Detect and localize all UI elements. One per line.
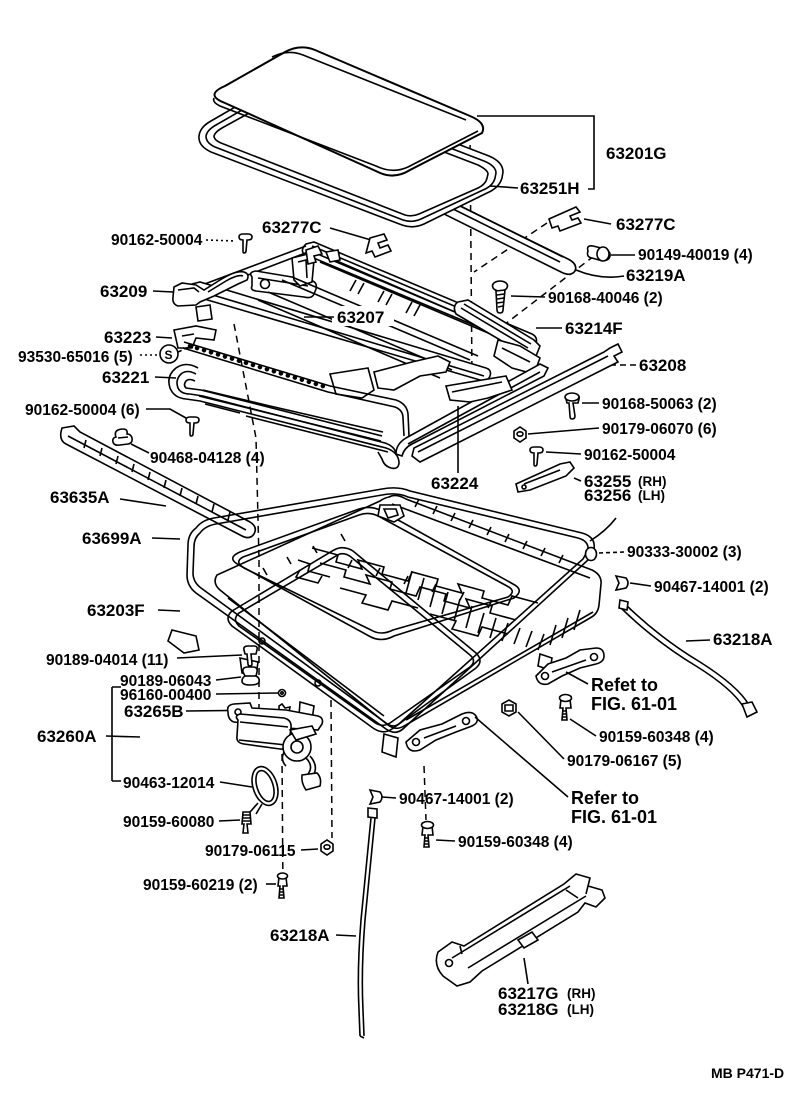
- svg-text:63221: 63221: [102, 368, 149, 387]
- svg-text:90179-06115: 90179-06115: [205, 843, 296, 860]
- svg-text:Refet to: Refet to: [591, 675, 658, 695]
- svg-text:FIG. 61-01: FIG. 61-01: [591, 694, 677, 714]
- svg-text:90468-04128 (4): 90468-04128 (4): [150, 450, 265, 467]
- svg-text:63635A: 63635A: [50, 488, 110, 507]
- svg-text:63265B: 63265B: [124, 702, 184, 721]
- svg-text:90159-60080: 90159-60080: [123, 814, 214, 831]
- svg-text:63260A: 63260A: [37, 727, 97, 746]
- svg-text:90162-50004: 90162-50004: [584, 447, 676, 464]
- svg-text:63218A: 63218A: [713, 630, 773, 649]
- svg-text:63223: 63223: [104, 328, 151, 347]
- svg-text:90467-14001 (2): 90467-14001 (2): [654, 579, 769, 596]
- svg-text:(RH): (RH): [567, 986, 596, 1001]
- svg-text:63251H: 63251H: [520, 179, 580, 198]
- svg-text:90159-60219 (2): 90159-60219 (2): [143, 877, 258, 894]
- svg-text:MB P471-D: MB P471-D: [711, 1065, 784, 1081]
- svg-text:(LH): (LH): [567, 1002, 594, 1017]
- svg-text:63209: 63209: [100, 282, 147, 301]
- svg-text:63277C: 63277C: [616, 215, 676, 234]
- svg-text:S: S: [165, 348, 173, 362]
- svg-text:63224: 63224: [431, 474, 479, 493]
- svg-text:63256: 63256: [584, 486, 631, 505]
- svg-text:90189-04014 (11): 90189-04014 (11): [46, 652, 168, 669]
- svg-text:90467-14001 (2): 90467-14001 (2): [399, 791, 514, 808]
- svg-text:90159-60348 (4): 90159-60348 (4): [599, 729, 714, 746]
- svg-text:63699A: 63699A: [82, 529, 142, 548]
- svg-text:63203F: 63203F: [87, 601, 145, 620]
- svg-text:(LH): (LH): [638, 488, 665, 503]
- svg-text:93530-65016 (5): 93530-65016 (5): [18, 349, 133, 366]
- svg-text:90149-40019 (4): 90149-40019 (4): [638, 247, 753, 264]
- svg-text:FIG. 61-01: FIG. 61-01: [571, 807, 657, 827]
- svg-text:63208: 63208: [639, 356, 686, 375]
- svg-text:(RH): (RH): [638, 474, 667, 489]
- svg-text:90162-50004 (6): 90162-50004 (6): [25, 402, 140, 419]
- svg-text:90179-06167 (5): 90179-06167 (5): [567, 753, 682, 770]
- svg-text:90168-40046 (2): 90168-40046 (2): [548, 290, 663, 307]
- svg-text:90168-50063 (2): 90168-50063 (2): [602, 396, 717, 413]
- svg-text:63277C: 63277C: [262, 218, 322, 237]
- svg-text:63218A: 63218A: [270, 926, 330, 945]
- svg-text:90159-60348 (4): 90159-60348 (4): [458, 834, 573, 851]
- svg-text:63218G: 63218G: [498, 1000, 559, 1019]
- svg-text:90179-06070 (6): 90179-06070 (6): [602, 421, 717, 438]
- svg-text:90333-30002 (3): 90333-30002 (3): [627, 544, 742, 561]
- svg-text:90463-12014: 90463-12014: [123, 775, 215, 792]
- svg-text:Refer to: Refer to: [571, 788, 639, 808]
- svg-text:63214F: 63214F: [565, 319, 623, 338]
- svg-text:90162-50004: 90162-50004: [111, 232, 203, 249]
- svg-text:63201G: 63201G: [606, 144, 667, 163]
- svg-text:63207: 63207: [337, 308, 384, 327]
- svg-text:63219A: 63219A: [626, 266, 686, 285]
